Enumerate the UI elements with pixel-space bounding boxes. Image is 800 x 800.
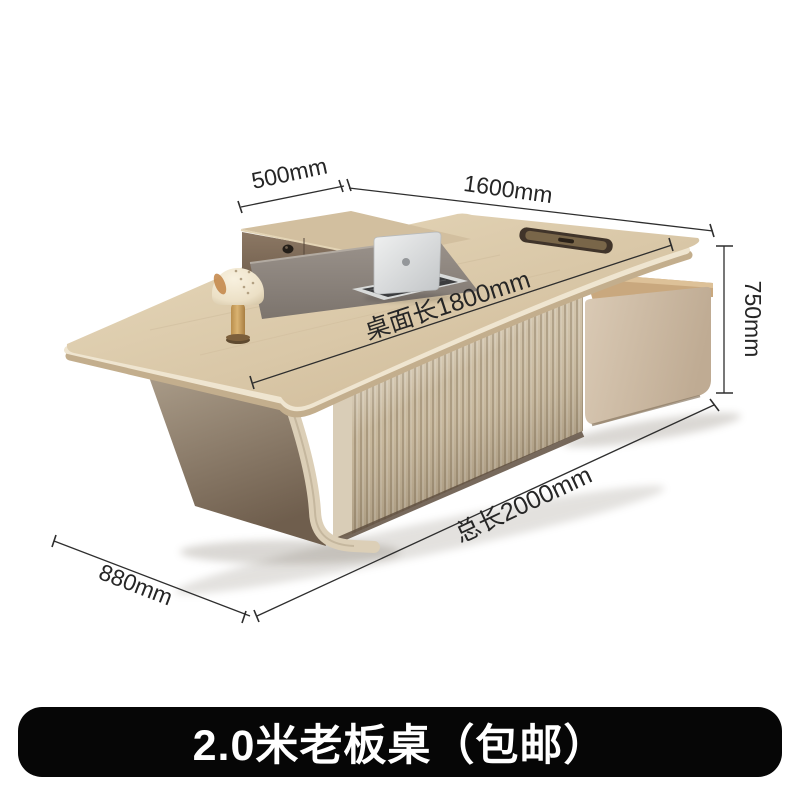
product-title-banner: 2.0米老板桌（包邮） (18, 707, 782, 777)
lamp-stem (231, 303, 245, 339)
side-cabinet (585, 273, 713, 425)
panel-end-cap (333, 385, 352, 540)
product-title-text: 2.0米老板桌（包邮） (193, 711, 608, 773)
dim-1600-tick-left (347, 179, 351, 191)
side-cabinet-body (585, 287, 711, 425)
drawer-handle-top-dot (285, 246, 288, 249)
dim-2000-tick-top (710, 399, 719, 411)
drawer-handle-top (283, 245, 294, 254)
product-image: 500mm 1600mm 750mm 桌面长1800mm 总长2000mm 88… (0, 0, 800, 800)
dim-label-500mm: 500mm (249, 152, 329, 193)
apple-logo-icon (402, 258, 410, 266)
lamp-base-top (226, 334, 250, 341)
dim-label-750mm: 750mm (740, 281, 766, 358)
dim-label-880mm: 880mm (95, 559, 176, 611)
